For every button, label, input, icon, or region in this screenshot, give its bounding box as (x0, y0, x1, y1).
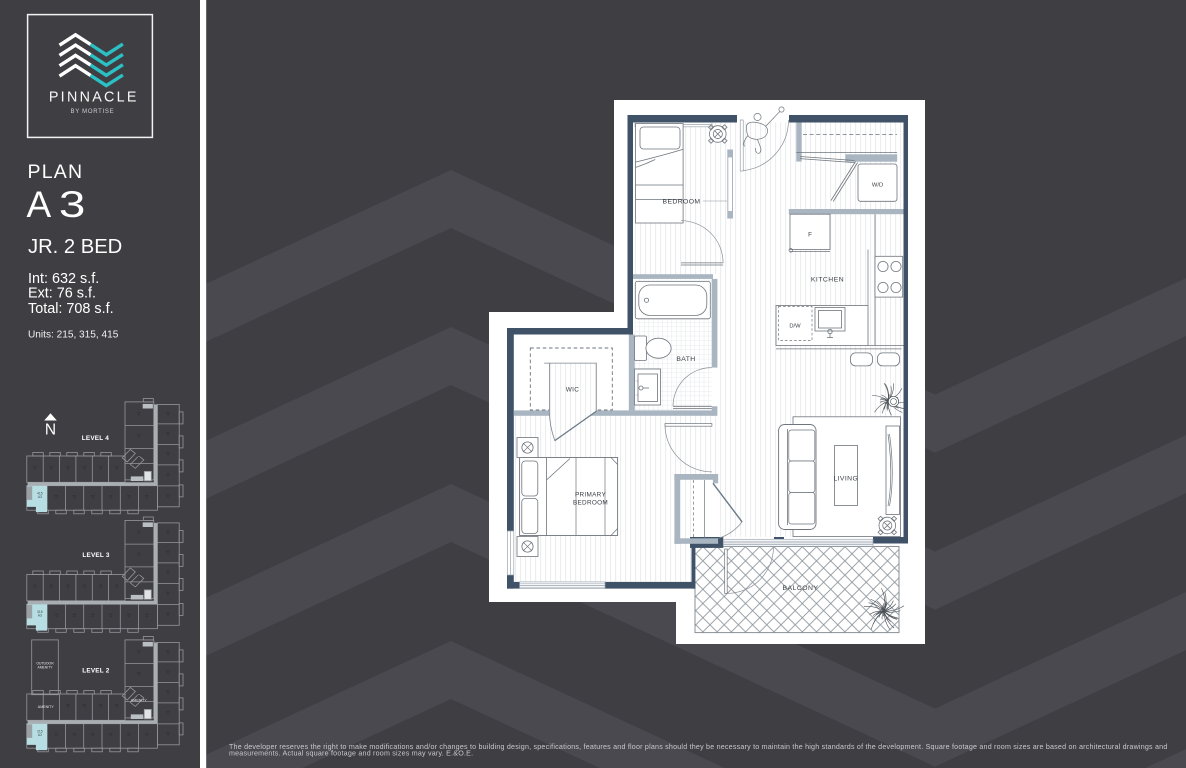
svg-text:LEVEL 3: LEVEL 3 (82, 552, 109, 559)
svg-text:WIC: WIC (566, 387, 580, 394)
svg-text:measurements. Actual square fo: measurements. Actual square footage and … (229, 750, 473, 758)
svg-text:AMENITY: AMENITY (131, 698, 148, 702)
svg-text:LEVEL 4: LEVEL 4 (82, 435, 109, 442)
svg-text:BEDROOM: BEDROOM (573, 500, 608, 507)
svg-text:LIVING: LIVING (833, 476, 858, 483)
svg-text:F: F (808, 232, 812, 239)
svg-text:D/W: D/W (789, 324, 801, 330)
svg-text:KITCHEN: KITCHEN (811, 277, 844, 284)
svg-text:LEVEL 2: LEVEL 2 (82, 668, 109, 675)
svg-text:BEDROOM: BEDROOM (663, 198, 701, 205)
svg-text:Total: 708 s.f.: Total: 708 s.f. (28, 301, 114, 317)
svg-text:BY MORTISE: BY MORTISE (71, 109, 115, 115)
svg-text:PINNACLE: PINNACLE (49, 90, 139, 106)
svg-text:3: 3 (59, 184, 86, 225)
svg-text:BATH: BATH (676, 356, 695, 363)
svg-text:JR. 2 BED: JR. 2 BED (28, 236, 122, 258)
svg-text:BALCONY: BALCONY (783, 585, 819, 592)
svg-text:Units: 215, 315, 415: Units: 215, 315, 415 (28, 330, 119, 341)
svg-text:Ext: 76 s.f.: Ext: 76 s.f. (28, 285, 96, 301)
svg-text:A: A (27, 184, 52, 225)
svg-text:N: N (45, 422, 56, 439)
svg-text:AMENITY: AMENITY (37, 666, 53, 670)
svg-text:A3: A3 (38, 495, 42, 499)
svg-text:AMENITY: AMENITY (38, 705, 55, 709)
svg-text:W/D: W/D (872, 183, 883, 189)
svg-text:PLAN: PLAN (28, 161, 84, 183)
svg-text:PRIMARY: PRIMARY (575, 492, 607, 499)
svg-text:A3: A3 (38, 733, 42, 737)
svg-text:A3: A3 (38, 614, 42, 618)
